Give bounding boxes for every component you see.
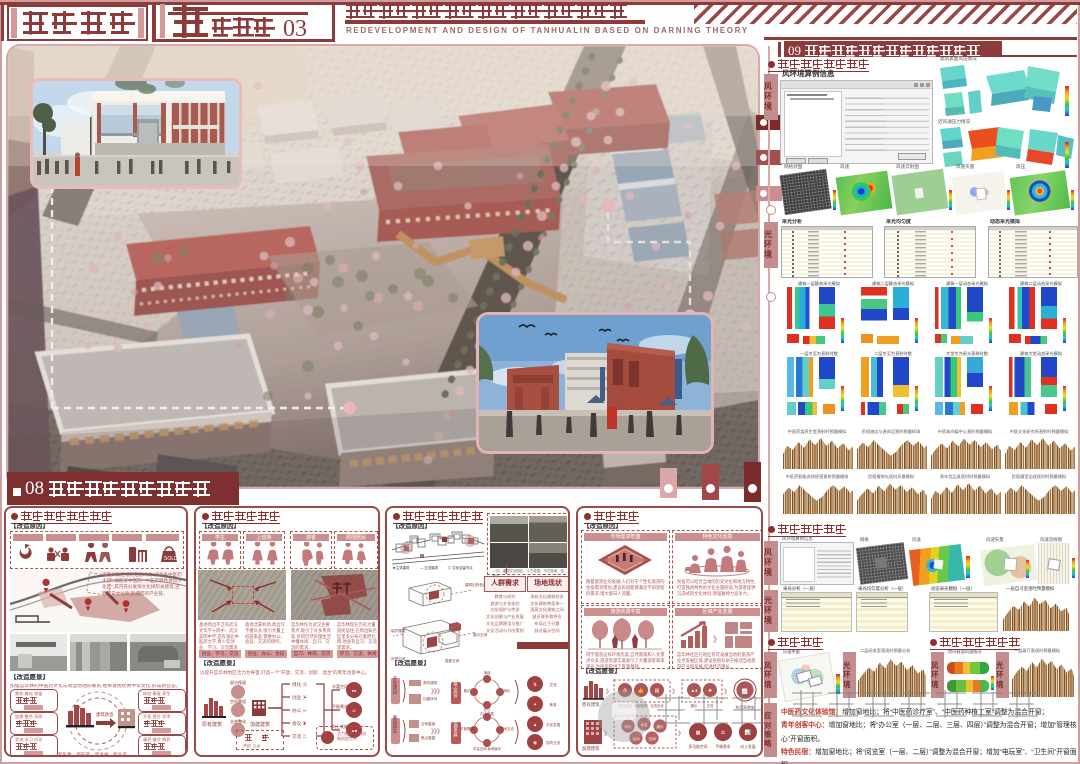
svg-text:演绎: 演绎 — [484, 670, 491, 675]
svg-text:协调发展: 协调发展 — [453, 718, 459, 738]
svg-text:美育: 美育 — [549, 702, 557, 707]
svg-text:📊: 📊 — [745, 729, 751, 736]
svg-text:原有建筑: 原有建筑 — [582, 701, 600, 708]
svg-text:⚖: ⚖ — [721, 730, 726, 736]
svg-text:丰富空间: 丰富空间 — [332, 683, 348, 689]
svg-text:▲: ▲ — [533, 722, 537, 727]
svg-text:向上发展: 向上发展 — [740, 744, 755, 749]
svg-text:✚: ✚ — [708, 688, 712, 693]
svg-text:✦: ✦ — [533, 702, 537, 707]
svg-text:会议 ♜: 会议 ♜ — [292, 720, 307, 727]
svg-text:多功能空间: 多功能空间 — [689, 744, 708, 749]
svg-text:稳之运营: 稳之运营 — [453, 679, 459, 699]
svg-text:重组再生: 重组再生 — [392, 714, 398, 733]
svg-text:向上发展: 向上发展 — [480, 711, 494, 716]
svg-text:绿化: 绿化 — [504, 688, 511, 693]
svg-text:协同交流: 协同交流 — [546, 740, 561, 745]
svg-text:原有建筑: 原有建筑 — [423, 680, 438, 685]
svg-text:加建建筑: 加建建筑 — [250, 721, 270, 728]
svg-text:⇅: ⇅ — [533, 682, 537, 687]
svg-text:创业 ▣: 创业 ▣ — [292, 694, 307, 701]
svg-text:学术交流: 学术交流 — [500, 726, 514, 731]
svg-text:文化发展: 文化发展 — [546, 722, 561, 727]
svg-text:绿化 ❀: 绿化 ❀ — [292, 681, 307, 688]
svg-text:丰富空间 休闲娱乐: 丰富空间 休闲娱乐 — [473, 746, 502, 751]
svg-text:建筑改造: 建筑改造 — [96, 711, 114, 718]
svg-text:交流: 交流 — [549, 682, 557, 687]
svg-text:▦: ▦ — [696, 730, 701, 736]
svg-text:》: 》 — [713, 635, 721, 644]
svg-text:业态整化: 业态整化 — [230, 718, 246, 724]
svg-text:平衡需求: 平衡需求 — [332, 703, 348, 709]
svg-text:空间重组: 空间重组 — [230, 698, 246, 704]
svg-text:加建建筑: 加建建筑 — [582, 745, 600, 752]
svg-text:▲♦: ▲♦ — [691, 688, 699, 693]
svg-text:空间: 空间 — [648, 736, 656, 741]
svg-text:办公 ㅆ: 办公 ㅆ — [292, 707, 307, 714]
svg-text:交流 ♖: 交流 ♖ — [292, 733, 307, 740]
svg-text:开发建设: 开发建设 — [392, 676, 398, 695]
svg-text:》: 》 — [678, 731, 684, 738]
svg-text:◉: ◉ — [533, 740, 537, 745]
svg-text:●●: ●● — [352, 688, 357, 693]
svg-text:◎ 文化遗留节点: ◎ 文化遗留节点 — [448, 565, 473, 570]
svg-text:空间重组: 空间重组 — [421, 721, 436, 726]
svg-text:平衡需求: 平衡需求 — [715, 744, 730, 749]
svg-text:》》》: 》》》 — [431, 689, 443, 696]
svg-text:》》》: 》》》 — [431, 729, 443, 736]
svg-text:— 交流展场: — 交流展场 — [420, 565, 439, 570]
svg-text:SOLD: SOLD — [164, 556, 178, 562]
svg-text:展示: 展示 — [464, 688, 471, 693]
svg-text:摄影空间: 摄影空间 — [445, 658, 460, 663]
svg-text:平衡需求: 平衡需求 — [460, 726, 474, 731]
svg-text:⚖: ⚖ — [352, 708, 356, 713]
svg-text:加建体块: 加建体块 — [423, 696, 438, 701]
svg-text:原有建筑: 原有建筑 — [202, 721, 222, 728]
svg-text:部分保留: 部分保留 — [230, 679, 246, 685]
svg-text:👍: 👍 — [638, 687, 644, 694]
svg-text:保护建筑: 保护建筑 — [391, 628, 406, 633]
svg-text:■ 主体建筑: ■ 主体建筑 — [393, 565, 410, 570]
